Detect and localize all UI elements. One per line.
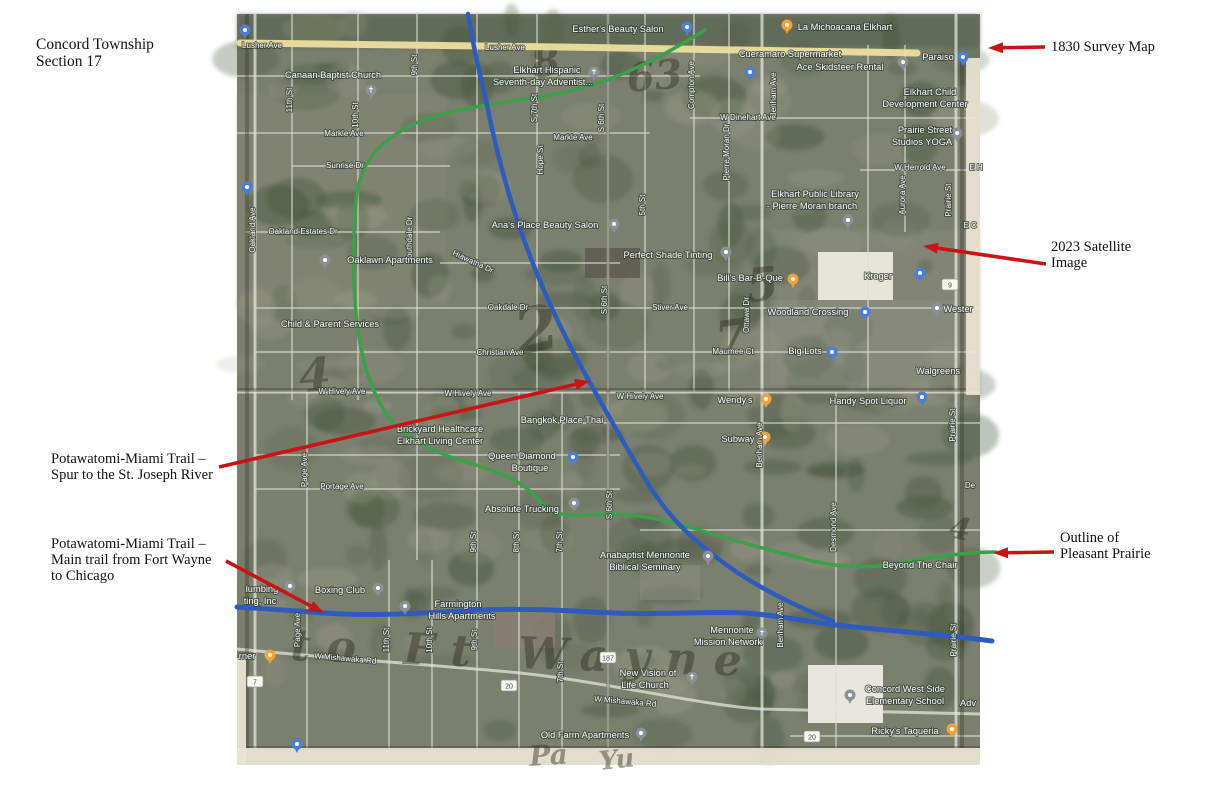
label-trail-main: Potawatomi-Miami Trail – Main trail from…	[51, 537, 211, 584]
svg-text:New Vision of: New Vision of	[620, 668, 677, 678]
svg-text:9th St: 9th St	[469, 531, 478, 553]
svg-text:Desmond Ave: Desmond Ave	[829, 502, 838, 552]
svg-text:Yu: Yu	[598, 743, 636, 777]
svg-text:Oakdale Dr: Oakdale Dr	[488, 303, 529, 312]
svg-text:Prairie St: Prairie St	[948, 408, 957, 442]
svg-text:Aurora Ave: Aurora Ave	[898, 175, 907, 215]
svg-text:Benham Ave: Benham Ave	[776, 602, 785, 648]
svg-text:Sunrise Dr: Sunrise Dr	[326, 161, 364, 170]
svg-text:S 6th St: S 6th St	[600, 285, 609, 314]
svg-text:Absolute Trucking: Absolute Trucking	[485, 504, 559, 514]
svg-text:9: 9	[948, 283, 952, 290]
svg-text:7: 7	[253, 680, 257, 687]
svg-text:Mission Network: Mission Network	[694, 637, 763, 647]
svg-text:Prairie St: Prairie St	[944, 183, 953, 217]
svg-text:7th St: 7th St	[555, 531, 564, 553]
svg-text:✝: ✝	[368, 86, 375, 95]
svg-text:W Dinehart Ave: W Dinehart Ave	[720, 113, 776, 122]
svg-text:8th St: 8th St	[512, 531, 521, 553]
svg-text:10th St: 10th St	[351, 102, 360, 128]
svg-text:9th St: 9th St	[410, 54, 419, 76]
title-line: Concord Township	[36, 37, 154, 54]
svg-text:Ottawa Dr: Ottawa Dr	[742, 297, 751, 333]
svg-text:Christian Ave: Christian Ave	[477, 348, 525, 357]
svg-text:Beyond The Chair: Beyond The Chair	[883, 560, 958, 570]
svg-text:Hills Apartments: Hills Apartments	[428, 611, 496, 621]
svg-text:Bangkok Place Thai: Bangkok Place Thai	[521, 415, 604, 425]
svg-text:Old Farm Apartments: Old Farm Apartments	[541, 730, 630, 740]
svg-text:W Herrold Ave: W Herrold Ave	[894, 163, 946, 172]
svg-text:Bill's Bar-B-Que: Bill's Bar-B-Que	[717, 273, 783, 283]
svg-text:5th St: 5th St	[638, 194, 647, 216]
svg-text:Esther's Beauty Salon: Esther's Beauty Salon	[572, 24, 663, 34]
svg-text:S 6th St: S 6th St	[597, 103, 606, 132]
svg-text:Studios YOGA: Studios YOGA	[892, 137, 953, 147]
svg-text:Paraiso: Paraiso	[922, 52, 954, 62]
svg-text:E H: E H	[969, 163, 983, 172]
svg-text:Elkhart Living Center: Elkhart Living Center	[397, 436, 483, 446]
svg-text:20: 20	[808, 735, 816, 742]
title-line: Section 17	[36, 54, 154, 71]
svg-text:Portage Ave: Portage Ave	[320, 482, 364, 491]
svg-text:✝: ✝	[689, 673, 696, 682]
svg-text:Big Lots: Big Lots	[788, 346, 822, 356]
svg-text:Page Ave: Page Ave	[293, 612, 302, 647]
svg-text:De: De	[965, 481, 976, 490]
svg-text:Elementary School: Elementary School	[866, 696, 944, 706]
svg-text:Maumee Ct: Maumee Ct	[712, 347, 754, 356]
svg-text:✝: ✝	[591, 68, 598, 77]
svg-text:Cueramaro Supermarket: Cueramaro Supermarket	[739, 49, 842, 59]
svg-text:Elkhart Public Library: Elkhart Public Library	[771, 189, 859, 199]
svg-text:Prairie St: Prairie St	[949, 623, 958, 657]
svg-text:Child & Parent Services: Child & Parent Services	[281, 319, 380, 329]
svg-text:La Michoacana Elkhart: La Michoacana Elkhart	[798, 22, 893, 32]
svg-text:Ricky's Taqueria: Ricky's Taqueria	[871, 726, 939, 736]
svg-text:187: 187	[602, 656, 614, 663]
svg-text:Concord West Side: Concord West Side	[865, 684, 945, 694]
svg-text:Canaan Baptist Church: Canaan Baptist Church	[285, 70, 381, 80]
svg-text:11th St: 11th St	[285, 87, 294, 113]
svg-text:Page Ave: Page Ave	[300, 452, 309, 487]
svg-text:Farmington: Farmington	[434, 599, 481, 609]
label-pleasant-prairie-outline: Outline of Pleasant Prairie	[1060, 531, 1151, 563]
svg-text:W Hively Ave: W Hively Ave	[319, 387, 367, 396]
svg-text:lumbing: lumbing	[246, 584, 279, 594]
svg-text:Anabaptist Mennonite: Anabaptist Mennonite	[600, 550, 690, 560]
svg-text:ting, Inc: ting, Inc	[244, 596, 277, 606]
svg-text:Hope St: Hope St	[536, 145, 545, 175]
svg-text:Benham Ave: Benham Ave	[755, 422, 764, 468]
svg-text:Walgreens: Walgreens	[916, 366, 960, 376]
svg-text:rner: rner	[239, 651, 256, 661]
svg-text:Benham Ave: Benham Ave	[769, 72, 778, 118]
svg-text:Perfect Shade Tinting: Perfect Shade Tinting	[624, 250, 713, 260]
svg-text:W Hively Ave: W Hively Ave	[445, 389, 493, 398]
svg-text:Prairie Street: Prairie Street	[898, 125, 953, 135]
svg-text:Queen Diamond: Queen Diamond	[488, 451, 556, 461]
svg-text:Elkhart Hispanic: Elkhart Hispanic	[513, 65, 581, 75]
label-2023-satellite-image: 2023 Satellite Image	[1051, 240, 1131, 272]
svg-text:Ace Skidsteer Rental: Ace Skidsteer Rental	[797, 62, 884, 72]
svg-text:Markle Ave: Markle Ave	[324, 129, 364, 138]
svg-text:Wester: Wester	[943, 304, 972, 314]
svg-text:Subway: Subway	[721, 434, 754, 444]
svg-text:Kroger: Kroger	[864, 271, 892, 281]
svg-text:Oakland Estates Dr: Oakland Estates Dr	[268, 227, 338, 236]
svg-text:Pa: Pa	[527, 737, 569, 773]
svg-text:Seventh-day Adventist...: Seventh-day Adventist...	[493, 77, 593, 87]
svg-text:S 6th St: S 6th St	[605, 490, 614, 519]
svg-text:S 7th St: S 7th St	[530, 93, 539, 122]
svg-text:9th St: 9th St	[470, 629, 479, 651]
svg-text:Boxing Club: Boxing Club	[315, 585, 365, 595]
svg-text:Oaklawn Apartments: Oaklawn Apartments	[347, 255, 433, 265]
svg-text:11th St: 11th St	[382, 627, 391, 653]
svg-text:Pierre Moran Dr: Pierre Moran Dr	[722, 123, 731, 180]
svg-text:W Hively Ave: W Hively Ave	[617, 392, 665, 401]
svg-text:10th St: 10th St	[425, 627, 434, 653]
svg-text:E C: E C	[963, 221, 977, 230]
svg-text:Elkhart Child: Elkhart Child	[904, 87, 957, 97]
svg-text:Handy Spot Liquor: Handy Spot Liquor	[829, 396, 906, 406]
svg-text:Markle Ave: Markle Ave	[553, 133, 593, 142]
svg-text:Ana's Place Beauty Salon: Ana's Place Beauty Salon	[492, 220, 599, 230]
svg-text:Lusher Ave: Lusher Ave	[242, 41, 282, 50]
prairie-arrow	[993, 547, 1054, 558]
svg-text:Life Church: Life Church	[621, 680, 669, 690]
svg-text:Adv: Adv	[960, 698, 976, 708]
survey-arrow	[988, 42, 1045, 53]
svg-text:Development Center: Development Center	[882, 99, 967, 109]
svg-text:Boutique: Boutique	[512, 463, 549, 473]
svg-text:Compton Ave: Compton Ave	[687, 61, 696, 109]
slide: Concord Township Section 17 86327544to F…	[0, 0, 1224, 792]
map-svg: 86327544to Ft WaynePaYu✝✝✝✝202018797Lush…	[237, 14, 980, 765]
svg-text:20: 20	[505, 684, 513, 691]
page-title: Concord Township Section 17	[36, 37, 154, 70]
svg-text:Stiver Ave: Stiver Ave	[652, 303, 688, 312]
svg-text:Lusher Ave: Lusher Ave	[485, 43, 525, 52]
svg-text:- Pierre Moran branch: - Pierre Moran branch	[767, 201, 857, 211]
svg-text:7th St: 7th St	[556, 661, 565, 683]
label-trail-spur: Potawatomi-Miami Trail – Spur to the St.…	[51, 452, 213, 484]
label-1830-survey-map: 1830 Survey Map	[1051, 40, 1155, 56]
svg-text:Woodland Crossing: Woodland Crossing	[768, 307, 849, 317]
svg-text:Biblical Seminary: Biblical Seminary	[609, 562, 681, 572]
map-image: 86327544to Ft WaynePaYu✝✝✝✝202018797Lush…	[237, 14, 980, 765]
svg-text:Mennonite: Mennonite	[710, 625, 753, 635]
svg-text:Oakland Ave: Oakland Ave	[248, 207, 257, 253]
svg-text:Brickyard Healthcare: Brickyard Healthcare	[397, 424, 483, 434]
svg-text:Wendy's: Wendy's	[717, 395, 753, 405]
